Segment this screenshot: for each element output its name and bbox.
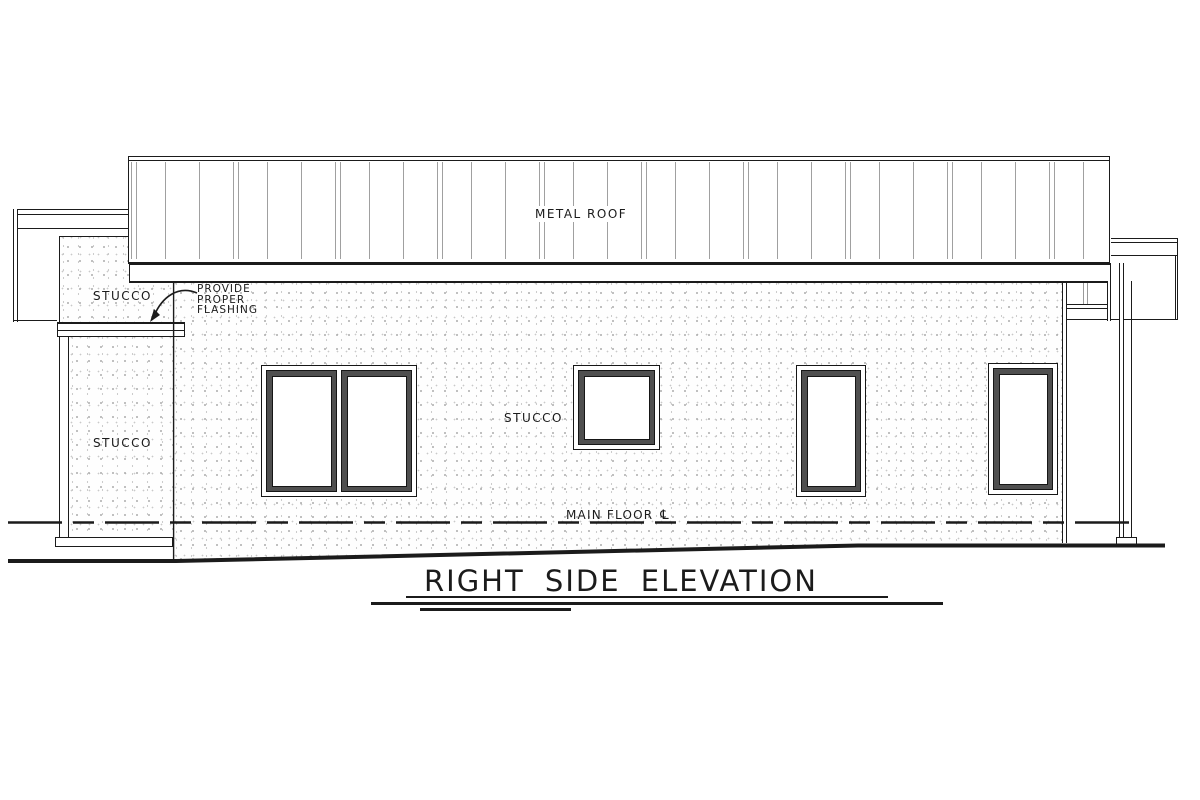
porch-column-trim-lines <box>59 337 69 538</box>
downspout-base <box>1116 537 1137 546</box>
window-sash <box>578 370 655 445</box>
centerline-datum-symbol: ℄ <box>660 508 668 523</box>
porch-roof-band <box>13 209 128 229</box>
soffit-flashing-line <box>1063 304 1110 309</box>
porch-roof-edge-line <box>13 214 128 215</box>
narrow-window-left <box>796 365 866 497</box>
stucco-label-column: STUCCO <box>93 436 152 450</box>
window-pane <box>347 376 407 487</box>
drawing-title: RIGHT SIDE ELEVATION <box>424 564 818 598</box>
header-trim-line <box>58 330 184 331</box>
window-sash <box>341 370 412 492</box>
window-sash <box>801 370 861 492</box>
flashing-note-line1: PROVIDE <box>197 284 258 295</box>
flashing-note-line3: FLASHING <box>197 305 258 316</box>
downspout <box>1119 263 1124 538</box>
porch-column-base <box>55 537 173 547</box>
roof-ridge-line <box>129 160 1109 161</box>
window-sash <box>266 370 337 492</box>
roof-fascia <box>129 263 1111 283</box>
rear-roof-band <box>1111 238 1178 256</box>
porch-header-flashing <box>57 322 185 337</box>
right-corner-line <box>1131 281 1132 537</box>
window-pane <box>807 376 856 487</box>
metal-roof-label: METAL ROOF <box>528 206 634 222</box>
elevation-drawing: METAL ROOF STUCCO STUCCO STUCCO PROVIDE … <box>0 0 1200 800</box>
main-floor-text: MAIN FLOOR <box>566 508 653 522</box>
wall-corner-trim <box>1062 283 1067 543</box>
window-pane <box>584 376 650 440</box>
stucco-label-upper: STUCCO <box>93 289 152 303</box>
flashing-callout-note: PROVIDE PROPER FLASHING <box>197 284 258 316</box>
porch-wall-bottom-line <box>13 320 57 322</box>
metal-roof: METAL ROOF <box>128 156 1110 264</box>
soffit-seam-lines <box>1083 283 1088 305</box>
stucco-label-wall: STUCCO <box>504 411 563 425</box>
fascia-right-cap <box>1107 281 1111 321</box>
window-sash <box>993 368 1053 490</box>
porch-roof-left-cap <box>13 209 18 322</box>
double-window <box>261 365 417 497</box>
narrow-window-right <box>988 363 1058 495</box>
main-floor-label: MAIN FLOOR℄ <box>566 508 669 523</box>
window-pane <box>999 374 1048 485</box>
rear-roof-edge-line <box>1111 242 1177 243</box>
square-window <box>573 365 660 450</box>
window-pane <box>272 376 332 487</box>
